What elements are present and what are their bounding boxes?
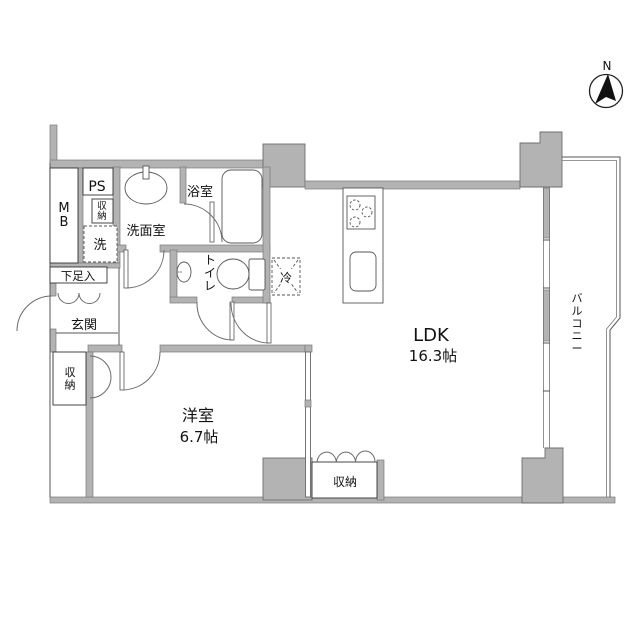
shoe-cabinet-label: 下足入 [61,269,96,283]
bathtub [222,170,262,243]
floor-plan: N PS MB 収納 洗 洗面室 浴室 トイレ 冷 下足入 玄関 収納 洋室 6… [0,0,640,640]
meter-box-label: MB [58,201,69,230]
ldk-label: LDK [413,325,450,346]
ldk-size: 16.3帖 [409,347,457,365]
western-room-size: 6.7帖 [180,428,219,446]
floor-plan-svg: N PS MB 収納 洗 洗面室 浴室 トイレ 冷 下足入 玄関 収納 洋室 6… [0,0,640,640]
western-room-label: 洋室 [182,406,214,425]
bedroom-closet-label: 収納 [65,366,76,392]
washer-label: 洗 [93,238,106,253]
toilet-label: トイレ [204,253,216,293]
washroom-label: 洗面室 [126,223,165,239]
partition-westernroom-ldk [305,352,311,497]
entrance-label: 玄関 [71,318,97,333]
bathroom-label: 浴室 [187,184,213,200]
kitchen-counter [343,188,383,303]
balcony-label: バルコニー [572,292,583,355]
pipe-space-label: PS [88,179,105,195]
compass-north-label: N [603,59,612,73]
fridge-label: 冷 [280,271,292,285]
ldk-closet-label: 収納 [333,475,357,489]
kitchen-sink [350,252,376,291]
hall-storage-label: 収納 [97,200,107,222]
stove [347,196,375,229]
